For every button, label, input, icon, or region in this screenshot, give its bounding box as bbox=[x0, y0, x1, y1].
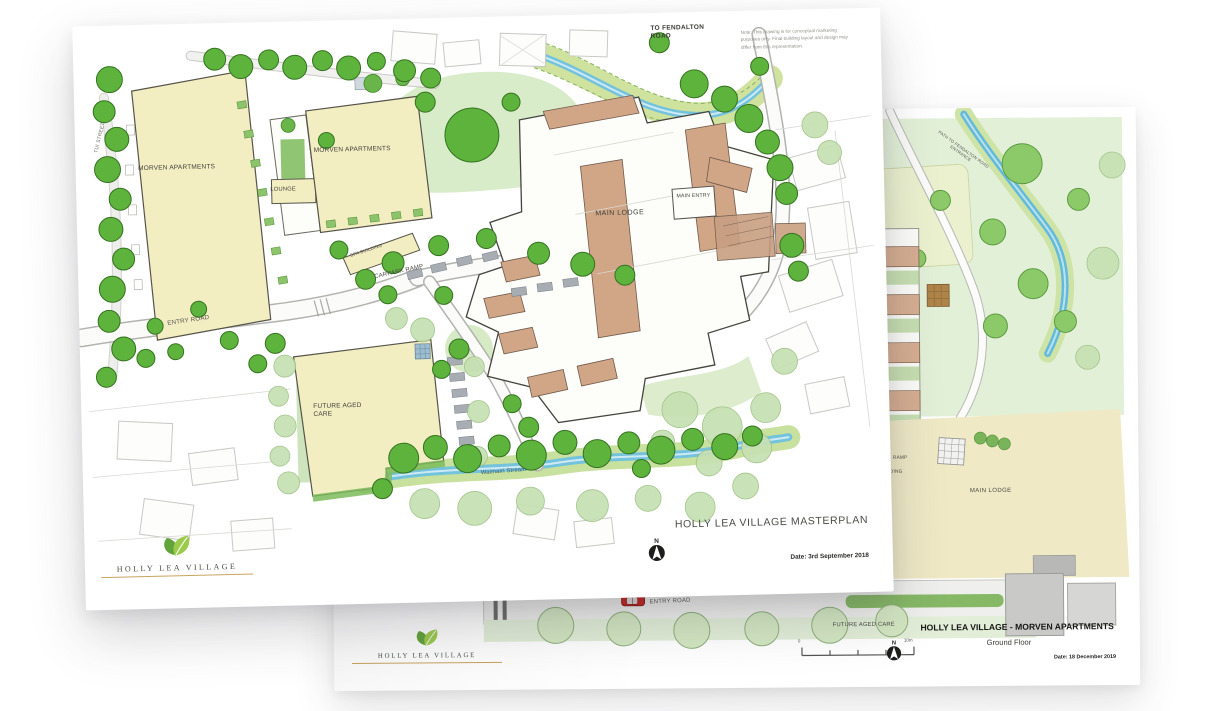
back-sheet-subtitle: Ground Floor bbox=[904, 637, 1114, 648]
page-canvas: PATH TO FENDALTON ROAD ENTRANCE CARPARK … bbox=[0, 0, 1215, 711]
north-letter: N bbox=[654, 538, 659, 545]
north-arrow-icon: N bbox=[886, 637, 902, 663]
label-future-aged-care: FUTURE AGED CARE bbox=[313, 401, 381, 419]
brand-logo-text: HOLLY LEA VILLAGE bbox=[117, 562, 238, 574]
morven-apartments-west-building bbox=[123, 70, 289, 341]
back-sheet-date: Date: 18 December 2019 bbox=[1054, 654, 1116, 660]
label-back-main-lodge: MAIN LODGE bbox=[951, 488, 1031, 496]
brand-logo: HOLLY LEA VILLAGE bbox=[352, 626, 502, 664]
label-main-entry: MAIN ENTRY bbox=[675, 193, 711, 200]
front-document-sheet: Note: This drawing is for conceptual mar… bbox=[72, 8, 894, 611]
back-sheet-title: HOLLY LEA VILLAGE - MORVEN APARTMENTS bbox=[920, 621, 1113, 633]
north-arrow-icon: N bbox=[647, 535, 666, 563]
label-back-future-aged-care: FUTURE AGED CARE bbox=[824, 622, 904, 630]
scale-start-label: 0 bbox=[798, 638, 801, 643]
brand-logo: HOLLY LEA VILLAGE bbox=[100, 531, 253, 579]
label-lounge: LOUNGE bbox=[258, 186, 308, 194]
disclaimer-note: Note: This drawing is for conceptual mar… bbox=[740, 26, 852, 50]
brand-logo-text: HOLLY LEA VILLAGE bbox=[378, 652, 476, 660]
back-trellis bbox=[938, 438, 966, 466]
leaf-logo-icon bbox=[159, 532, 194, 561]
north-letter: N bbox=[892, 640, 896, 646]
label-to-fendalton-road: TO FENDALTON ROAD bbox=[650, 23, 714, 41]
morven-apartments-east-building bbox=[305, 96, 432, 233]
leaf-logo-icon bbox=[413, 626, 441, 649]
